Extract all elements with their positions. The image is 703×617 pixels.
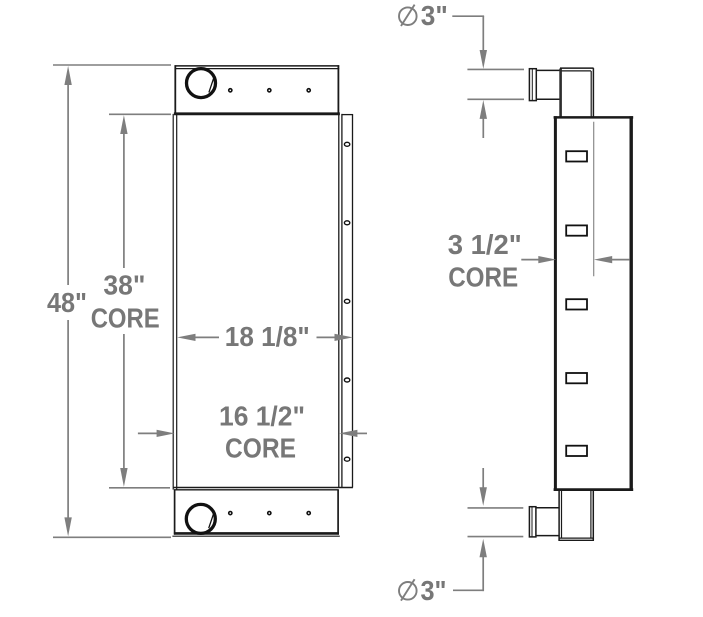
svg-text:16 1/2": 16 1/2" (219, 401, 305, 432)
svg-text:CORE: CORE (91, 303, 160, 334)
svg-text:CORE: CORE (448, 262, 518, 293)
svg-text:48": 48" (47, 287, 87, 318)
svg-text:3 1/2": 3 1/2" (448, 229, 522, 260)
svg-text:3": 3" (421, 575, 447, 606)
svg-text:38": 38" (103, 269, 145, 300)
svg-text:3": 3" (421, 0, 448, 31)
svg-text:18 1/8": 18 1/8" (225, 321, 310, 352)
svg-text:CORE: CORE (225, 433, 296, 464)
